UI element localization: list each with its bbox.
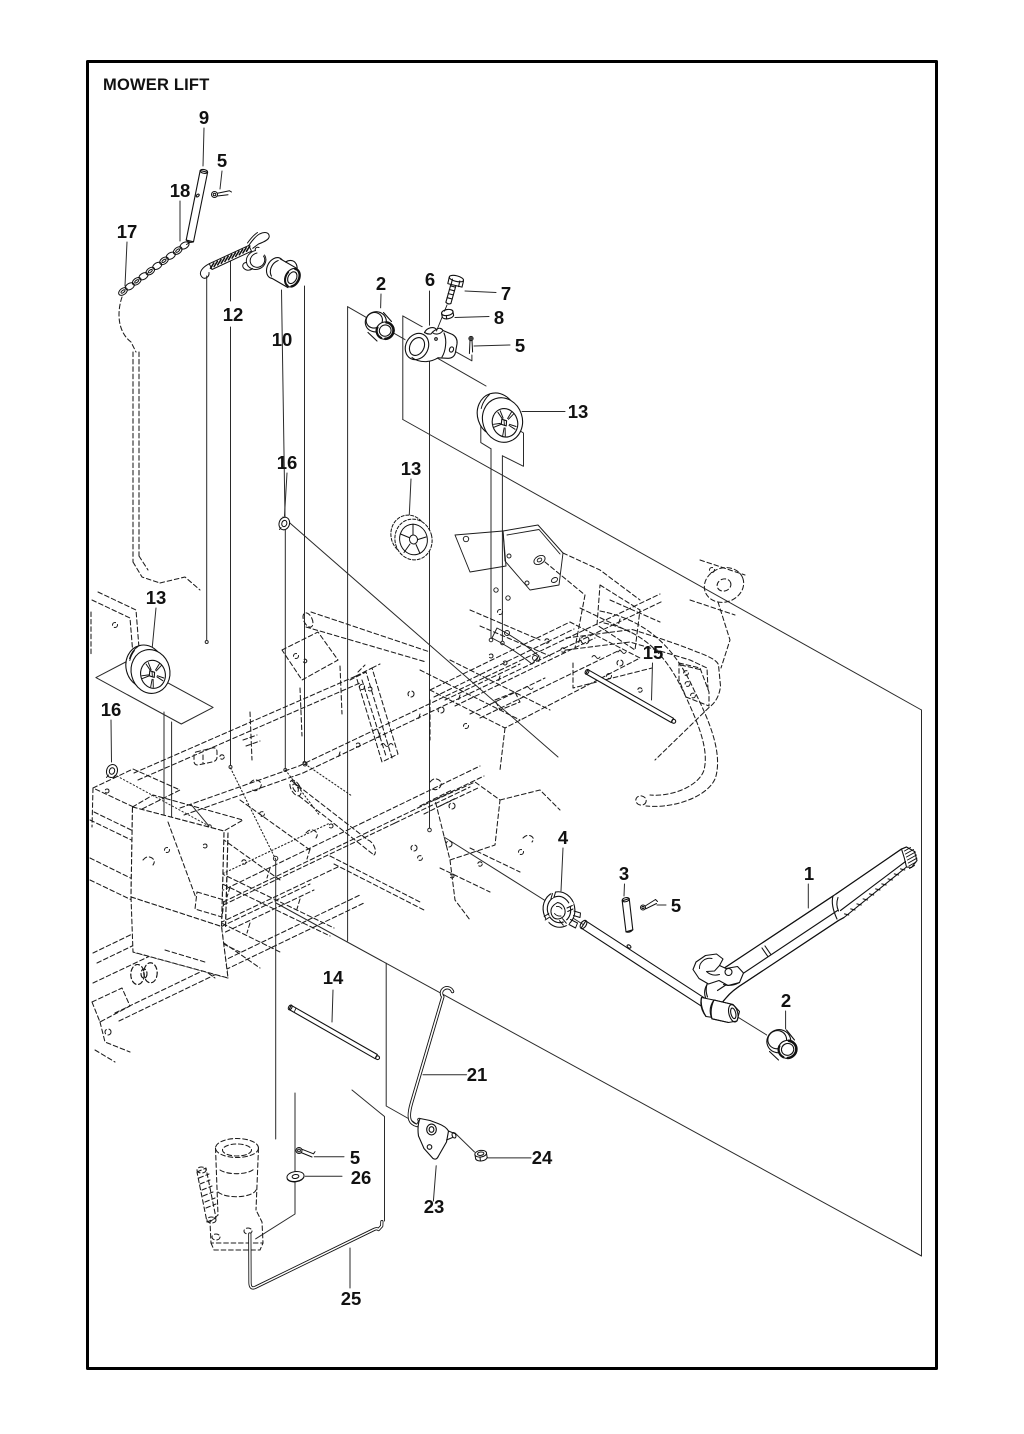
svg-text:12: 12: [223, 304, 244, 325]
svg-text:15: 15: [643, 642, 664, 663]
svg-text:13: 13: [568, 401, 589, 422]
svg-text:26: 26: [351, 1167, 372, 1188]
svg-text:5: 5: [217, 150, 227, 171]
svg-text:6: 6: [425, 269, 435, 290]
svg-text:18: 18: [170, 180, 191, 201]
svg-text:13: 13: [401, 458, 422, 479]
svg-text:24: 24: [532, 1147, 553, 1168]
svg-text:10: 10: [272, 329, 293, 350]
svg-text:25: 25: [341, 1288, 362, 1309]
svg-text:3: 3: [619, 863, 629, 884]
svg-text:21: 21: [467, 1064, 488, 1085]
svg-text:14: 14: [323, 967, 344, 988]
svg-text:5: 5: [515, 335, 525, 356]
svg-text:23: 23: [424, 1196, 445, 1217]
svg-text:1: 1: [804, 863, 814, 884]
svg-text:16: 16: [101, 699, 122, 720]
svg-text:2: 2: [781, 990, 791, 1011]
svg-text:7: 7: [501, 283, 511, 304]
svg-text:5: 5: [350, 1147, 360, 1168]
svg-text:17: 17: [117, 221, 138, 242]
svg-text:MOWER LIFT: MOWER LIFT: [103, 76, 209, 94]
svg-text:5: 5: [671, 895, 681, 916]
svg-text:8: 8: [494, 307, 504, 328]
svg-text:13: 13: [146, 587, 167, 608]
svg-text:2: 2: [376, 273, 386, 294]
svg-text:4: 4: [558, 827, 569, 848]
svg-text:9: 9: [199, 107, 209, 128]
svg-text:16: 16: [277, 452, 298, 473]
